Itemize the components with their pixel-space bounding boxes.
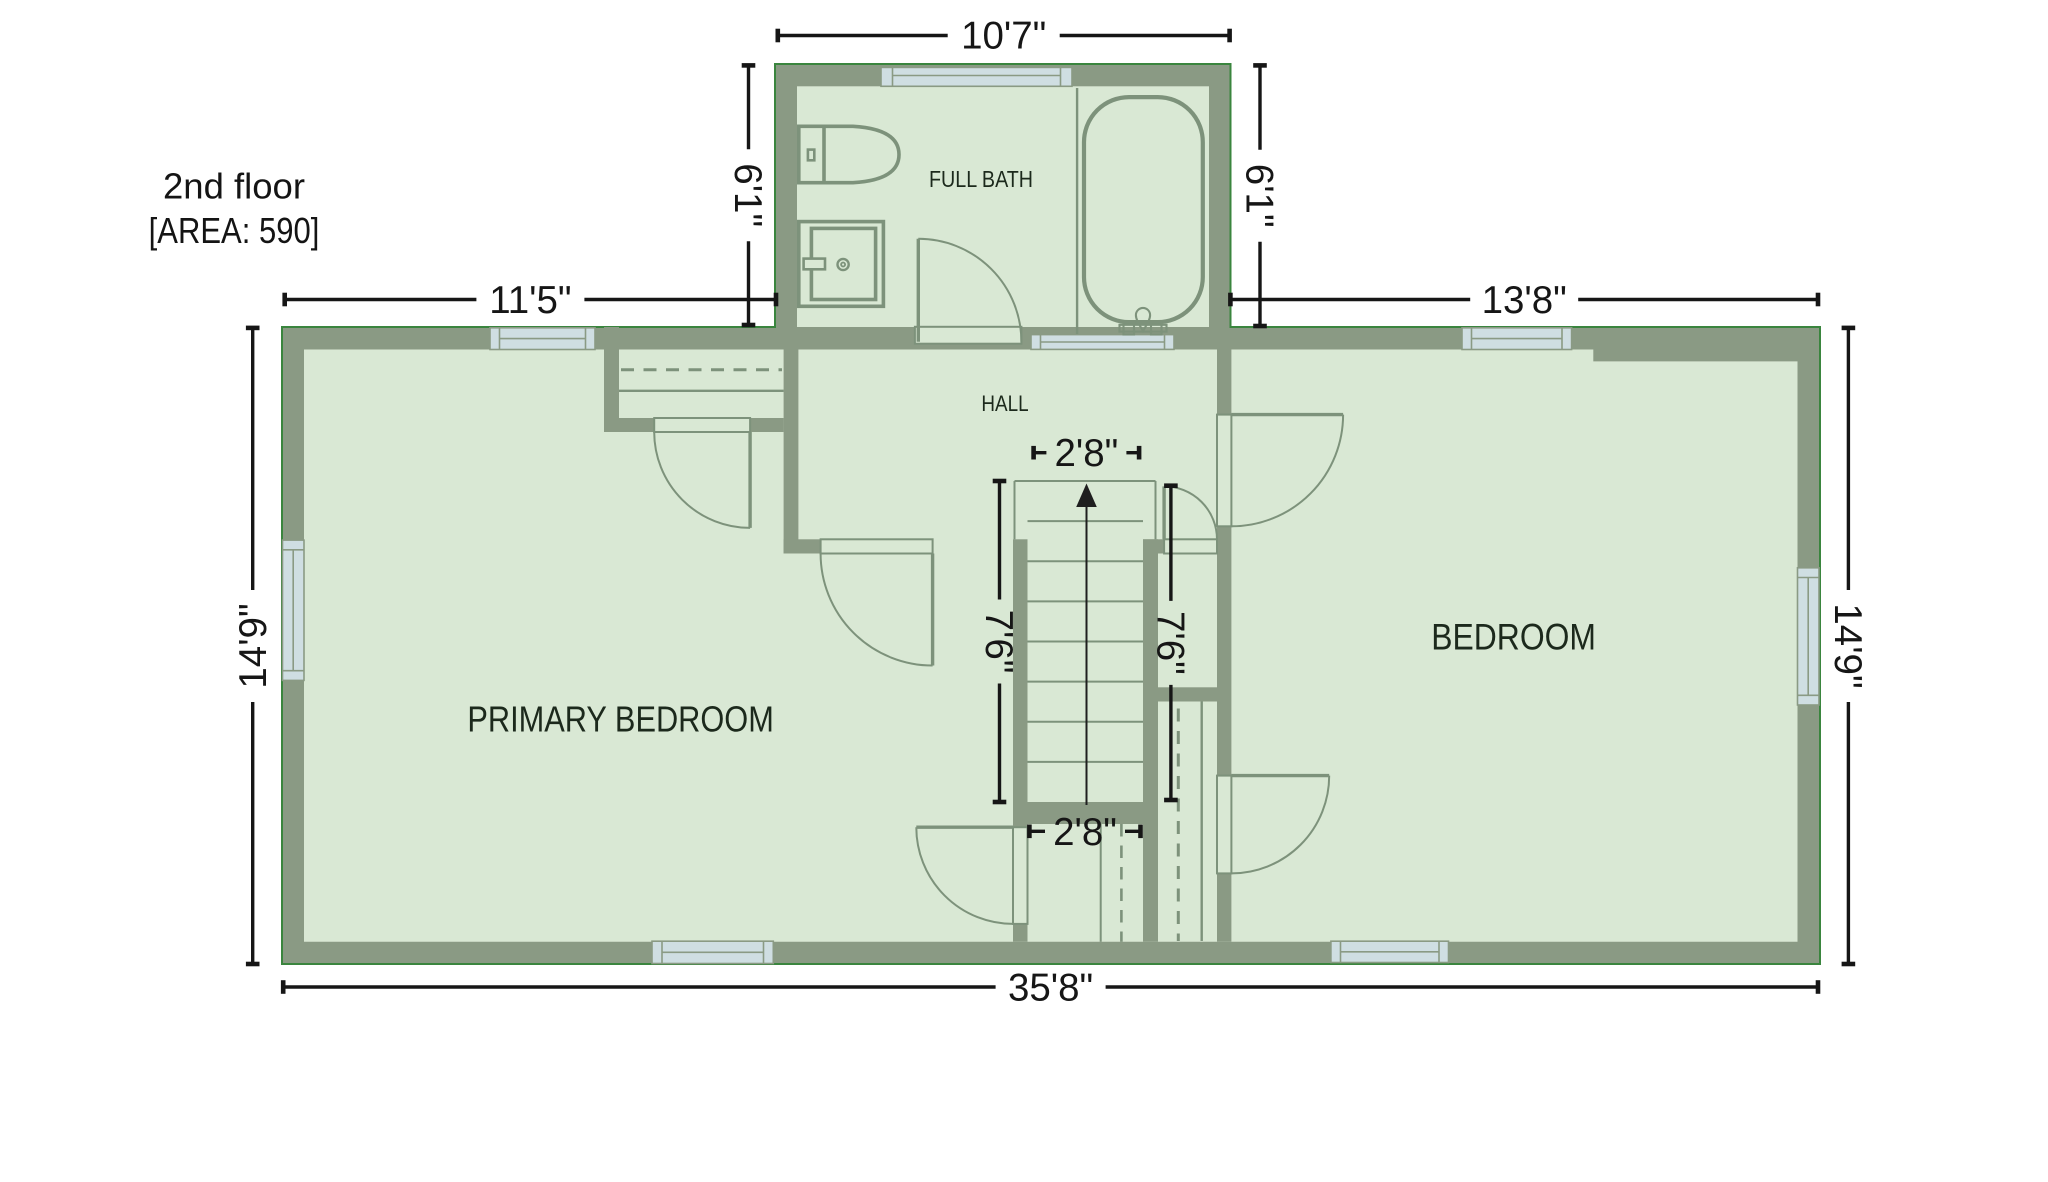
svg-text:7'6": 7'6" (977, 610, 1020, 674)
svg-text:6'1": 6'1" (1238, 164, 1281, 228)
svg-text:7'6": 7'6" (1148, 611, 1191, 675)
svg-text:35'8": 35'8" (1008, 967, 1093, 1010)
svg-text:6'1": 6'1" (726, 163, 769, 227)
svg-text:FULL BATH: FULL BATH (929, 166, 1033, 192)
svg-text:14'9": 14'9" (1826, 603, 1869, 688)
svg-text:2nd floor: 2nd floor (163, 165, 305, 206)
svg-text:14'9": 14'9" (232, 603, 275, 688)
svg-text:10'7": 10'7" (961, 14, 1046, 57)
svg-text:[AREA: 590]: [AREA: 590] (149, 211, 320, 252)
svg-text:13'8": 13'8" (1482, 279, 1567, 322)
svg-text:2'8": 2'8" (1053, 811, 1117, 854)
svg-text:BEDROOM: BEDROOM (1431, 616, 1596, 658)
svg-text:HALL: HALL (981, 391, 1028, 416)
svg-text:2'8": 2'8" (1054, 432, 1118, 475)
svg-text:PRIMARY BEDROOM: PRIMARY BEDROOM (467, 700, 773, 740)
svg-text:11'5": 11'5" (489, 279, 571, 322)
